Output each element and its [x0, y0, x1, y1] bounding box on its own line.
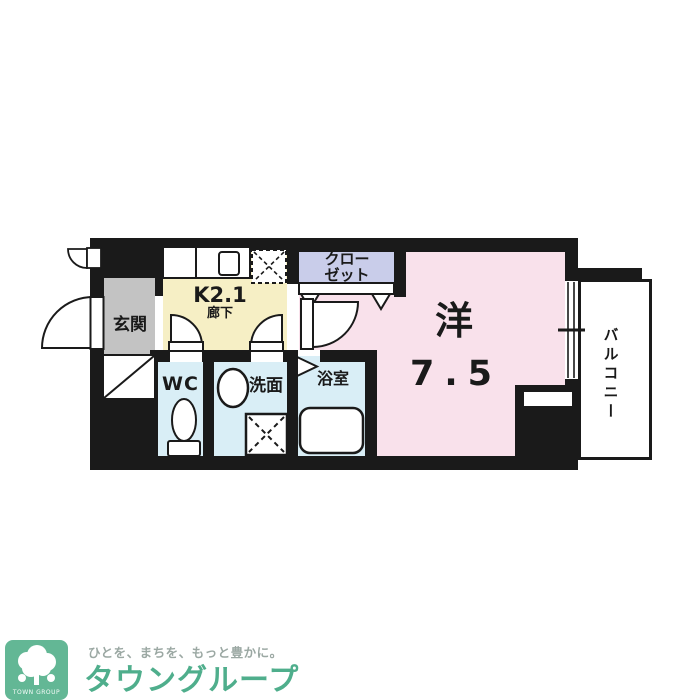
wall-left [90, 238, 104, 470]
logo-square-text: TOWN GROUP [12, 689, 60, 696]
wall-kitchen-right [287, 238, 299, 284]
label-bathroom: 浴室 [306, 370, 360, 388]
label-washroom: 洗面 [242, 377, 290, 396]
wall-balcony-stub [578, 268, 642, 279]
window-opening [565, 281, 578, 379]
town-group-logo: TOWN GROUP [5, 640, 68, 700]
label-genkan: 玄関 [107, 316, 153, 335]
brand-name: タウングループ [84, 655, 299, 699]
entrance-opening [90, 296, 104, 350]
pillar-pipe-space [515, 385, 578, 457]
floorplan-page: 玄関 K2.1 廊下 WC 洗面 浴室 クローゼット 洋 7.5 バルコニー T… [0, 0, 700, 700]
wall-bottom [90, 456, 578, 470]
wall-bath-right [365, 350, 377, 457]
tree-icon: TOWN GROUP [5, 640, 68, 700]
label-balcony: バルコニー [602, 306, 619, 442]
wall-genkan-kitchen [155, 251, 163, 296]
wall-top-left-block [100, 238, 162, 278]
wall-closet-right [394, 238, 406, 297]
label-wc: WC [158, 374, 203, 395]
wall-h-c [283, 350, 298, 362]
label-corridor: 廊下 [180, 307, 260, 321]
label-kitchen: K2.1 [180, 284, 260, 307]
genkan-step-icon [103, 355, 155, 399]
label-western-room: 洋 [414, 301, 494, 343]
label-room-size: 7.5 [398, 355, 514, 394]
label-closet: クローゼット [320, 252, 374, 283]
room-western-left [299, 294, 406, 350]
wall-genkan-lower [103, 398, 158, 457]
wall-h-b [202, 350, 251, 362]
wall-wc-washroom [203, 362, 214, 457]
